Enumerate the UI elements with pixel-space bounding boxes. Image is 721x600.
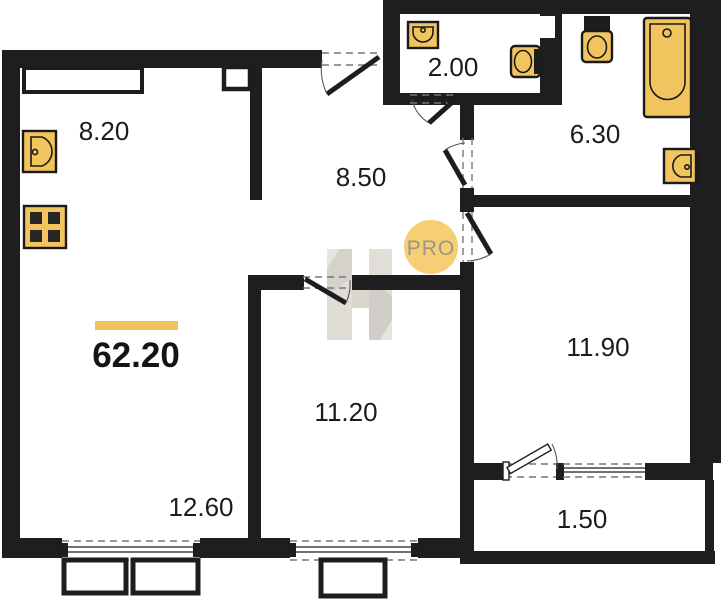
- wall-room-left: [248, 275, 261, 558]
- kitchen-sink-icon: [23, 131, 56, 172]
- wall-room-top-b: [352, 275, 460, 290]
- bathtub-icon: [644, 18, 691, 117]
- wall-bathroom-bedroom: [460, 195, 692, 207]
- balcony-door-leaf: [507, 444, 551, 474]
- wall-bottom-2: [200, 538, 290, 558]
- window-room: [287, 541, 420, 596]
- bathroom-toilet-icon: [582, 16, 612, 62]
- wall-balcony-a: [473, 463, 505, 480]
- wall-top-left: [2, 50, 322, 68]
- area-label-bathroom: 6.30: [570, 119, 621, 149]
- duct-shaft: [224, 67, 250, 89]
- area-label-hallway: 8.50: [336, 162, 387, 192]
- wall-hall-right-c: [460, 262, 474, 558]
- window-living-left: [59, 541, 202, 593]
- floor-plan-svg: PRO: [0, 0, 721, 600]
- wall-hall-right-a: [460, 93, 474, 140]
- window-bay-1: [64, 560, 126, 593]
- area-label-balcony: 1.50: [557, 504, 608, 534]
- builder-logo-watermark: [327, 249, 392, 340]
- area-label-living: 12.60: [168, 492, 233, 522]
- wall-wc-bathroom: [540, 0, 562, 95]
- wall-bottom-1: [2, 538, 62, 558]
- entrance-door: [321, 53, 380, 94]
- wall-balcony-b: [645, 463, 713, 480]
- stove-icon: [24, 206, 66, 248]
- floor-plan-canvas: PRO: [0, 0, 721, 600]
- area-label-wc: 2.00: [428, 52, 479, 82]
- pro-badge-label: PRO: [407, 237, 456, 260]
- wc-toilet-icon: [511, 46, 542, 77]
- area-label-room: 11.20: [314, 397, 377, 427]
- wall-niche: [533, 16, 555, 38]
- wall-balcony-bottom: [460, 551, 715, 564]
- total-area-value: 62.20: [92, 336, 180, 375]
- bathroom-sink-icon: [664, 149, 696, 183]
- kitchen-counter: [24, 68, 142, 92]
- window-bay-2: [133, 560, 198, 593]
- balcony-door-window: [503, 444, 645, 480]
- bedroom-door: [463, 212, 491, 262]
- area-label-kitchen: 8.20: [79, 116, 130, 146]
- wall-right: [690, 13, 721, 463]
- window-bay-3: [321, 560, 385, 596]
- wall-wc-left: [383, 0, 400, 105]
- area-label-bedroom: 11.90: [566, 332, 629, 362]
- pro-badge: PRO: [404, 220, 458, 274]
- wall-left: [2, 50, 20, 558]
- total-area-accent-bar: [95, 321, 178, 330]
- wc-sink-icon: [408, 22, 438, 48]
- bathroom-door: [445, 138, 472, 188]
- total-area: 62.20: [92, 321, 180, 375]
